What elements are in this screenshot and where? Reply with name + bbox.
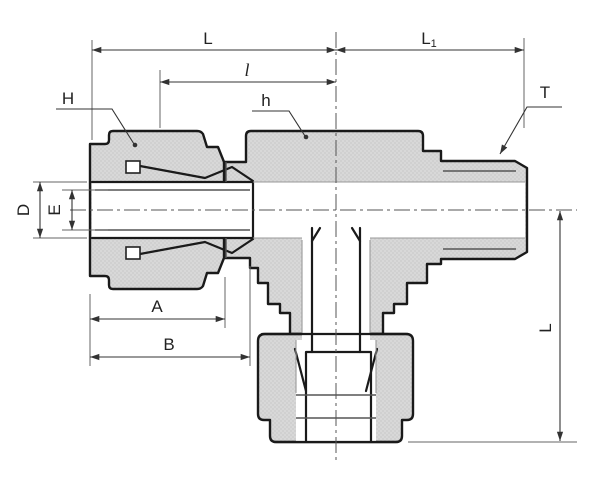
label-A: A bbox=[151, 297, 163, 316]
label-H: H bbox=[62, 89, 74, 108]
label-L-top: L bbox=[203, 29, 212, 48]
technical-drawing-canvas: L L1 l H h T D E A B L bbox=[0, 0, 603, 485]
label-E: E bbox=[45, 204, 64, 215]
leader-h-dot bbox=[304, 135, 309, 140]
label-T: T bbox=[540, 83, 550, 102]
fitting-drawing: L L1 l H h T D E A B L bbox=[0, 0, 603, 485]
leader-H-dot bbox=[133, 143, 138, 148]
label-B: B bbox=[163, 335, 174, 354]
label-D: D bbox=[14, 204, 33, 216]
label-l: l bbox=[244, 60, 249, 80]
label-L-side: L bbox=[536, 323, 555, 332]
label-L1: L1 bbox=[421, 29, 437, 50]
leader-T bbox=[500, 107, 562, 154]
label-h: h bbox=[261, 91, 270, 110]
fitting-body-group bbox=[90, 131, 527, 442]
